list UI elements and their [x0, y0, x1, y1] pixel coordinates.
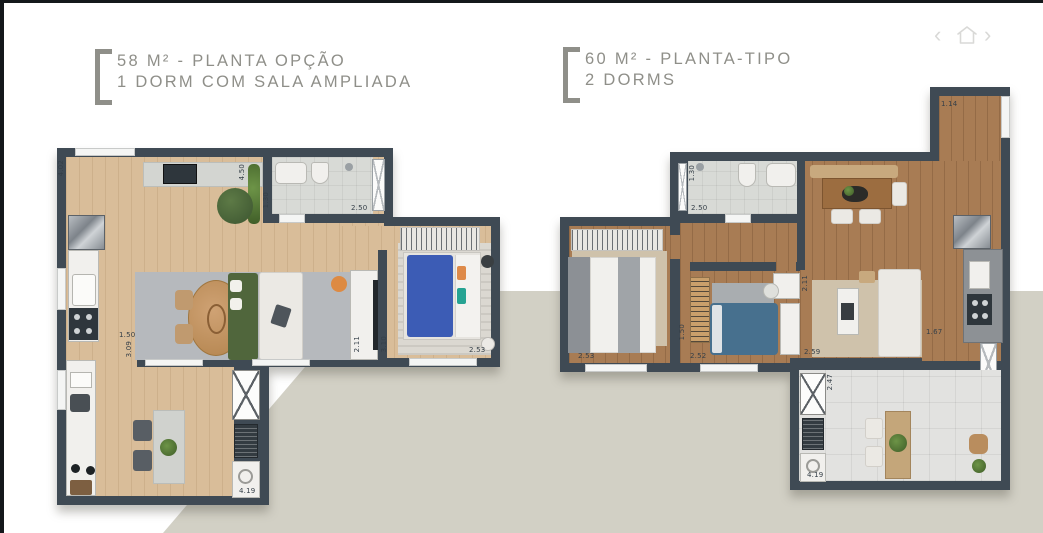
next-arrow[interactable]: ›: [984, 26, 991, 44]
side-window: [57, 268, 66, 310]
heater-vent: [234, 424, 258, 458]
dim-label: 1.50: [679, 324, 686, 340]
bedroom-window: [409, 358, 477, 366]
sofa-pillow: [230, 298, 242, 310]
toilet: [311, 162, 329, 184]
dim-label: 4.02: [58, 160, 65, 176]
bathroom-door: [279, 214, 305, 223]
table-plant: [844, 186, 854, 196]
frame-left-bar: [0, 0, 4, 533]
orange-pillow: [457, 266, 466, 280]
frame-top-bar: [0, 0, 1043, 3]
dim-label: 1.30: [689, 165, 696, 181]
bed1-pillows: [568, 257, 590, 353]
nightstand: [481, 255, 494, 268]
cooktop: [163, 164, 197, 184]
balcony-chair: [865, 446, 883, 467]
kitchen-sink: [72, 274, 96, 306]
dim-label: 4.19: [807, 472, 823, 479]
entry-door: [1001, 96, 1010, 138]
stove: [69, 308, 98, 340]
bathroom-door: [725, 214, 751, 223]
bed2-cabinet: [780, 303, 800, 355]
plan60-title: 60 M² - PLANTA-TIPO 2 DORMS: [585, 49, 793, 92]
bed2-pillow: [712, 305, 722, 353]
balcony-plant: [889, 434, 907, 452]
floor-plan-58: 4.02 4.50 1.30 2.50 1.50 3.09 2.11 3.10 …: [57, 148, 500, 505]
shelving-unit: [690, 277, 710, 343]
shaft: [800, 373, 826, 415]
bedroom2-door-gap: [776, 262, 796, 271]
washer-door: [238, 469, 253, 484]
balcony-chair: [865, 418, 883, 439]
dim-label: 1.67: [926, 329, 942, 336]
dim-label: 4.50: [239, 164, 246, 180]
wood-chair: [175, 324, 193, 344]
dim-label: 2.53: [578, 353, 594, 360]
side-stool: [969, 434, 988, 454]
chair: [133, 420, 152, 441]
wardrobe1: [571, 229, 663, 251]
bed1-blanket: [618, 257, 640, 353]
dim-label: 2.50: [691, 205, 707, 212]
shower-glass: [372, 159, 385, 211]
living-window: [252, 359, 310, 366]
home-icon[interactable]: [956, 25, 978, 45]
kitchen-sink: [969, 261, 990, 289]
heater-vent: [802, 418, 824, 450]
fridge: [68, 215, 105, 250]
plan58-title-line1: 58 M² - PLANTA OPÇÃO: [117, 51, 412, 72]
bathroom-wall: [263, 153, 272, 223]
dim-label: 2.47: [827, 374, 834, 390]
dining-chair: [831, 209, 853, 224]
table-plant: [160, 439, 177, 456]
shower-head: [345, 163, 353, 171]
dim-label: 1.30: [263, 192, 270, 208]
shaft: [232, 370, 260, 420]
teal-pillow: [457, 288, 466, 304]
fridge: [953, 215, 991, 249]
wood-chair: [175, 290, 193, 310]
balcony-wall: [790, 358, 922, 370]
beige-pillow: [859, 271, 875, 283]
desk-chair: [331, 276, 347, 292]
bathroom-sink: [766, 163, 796, 187]
sofa-pillow: [230, 280, 242, 292]
living-window: [145, 359, 203, 366]
dim-label: 2.52: [690, 353, 706, 360]
potted-plant: [972, 459, 986, 473]
dim-label: 1.14: [941, 101, 957, 108]
white-sofa: [878, 269, 921, 357]
shower-glass: [678, 163, 687, 211]
floor-plan-60: 1.14 1.30 2.50 2.53 1.50 2.52 2.11 2.59 …: [560, 87, 1010, 490]
prev-arrow[interactable]: ‹: [934, 26, 941, 44]
dining-chair: [859, 209, 881, 224]
bedroom1-door-gap: [670, 235, 680, 259]
plan58-title: 58 M² - PLANTA OPÇÃO 1 DORM COM SALA AMP…: [117, 51, 412, 94]
burners: [972, 300, 978, 306]
dim-label: 2.11: [354, 336, 361, 352]
dim-label: 4.19: [239, 488, 255, 495]
dim-label: 2.53: [469, 347, 485, 354]
green-pouf: [217, 188, 253, 224]
blue-blanket: [407, 255, 453, 337]
entry-door-gap: [75, 148, 135, 156]
dim-label: 2.50: [351, 205, 367, 212]
stove-burners: [74, 314, 80, 320]
table-decor: [207, 304, 226, 334]
dining-bench: [810, 165, 898, 178]
wardrobe: [400, 227, 480, 251]
shower-head: [696, 163, 704, 171]
table-frame-decor: [841, 303, 854, 320]
burners-low: [71, 464, 80, 473]
dim-label: 1.50: [119, 332, 135, 339]
dining-chair: [892, 182, 907, 206]
bathroom-sink: [275, 162, 307, 184]
dim-label: 2.59: [804, 349, 820, 356]
oven: [70, 480, 92, 495]
dim-label: 3.10: [381, 336, 388, 352]
desk2-chair: [763, 283, 779, 299]
bedroom1-window: [585, 364, 647, 372]
cooktop: [967, 294, 992, 325]
title-bracket-left: [95, 49, 112, 105]
bathroom-wall: [797, 152, 805, 223]
service-window: [57, 370, 66, 410]
chair: [133, 450, 152, 471]
dim-label: 3.09: [126, 341, 133, 357]
bedroom2-window: [700, 364, 758, 372]
toilet: [738, 163, 756, 187]
coffee-machine: [70, 394, 90, 412]
plan58-title-line2: 1 DORM COM SALA AMPLIADA: [117, 72, 412, 93]
dim-label: 2.11: [802, 275, 809, 291]
plan60-title-line1: 60 M² - PLANTA-TIPO: [585, 49, 793, 70]
prep-sink: [70, 372, 92, 388]
